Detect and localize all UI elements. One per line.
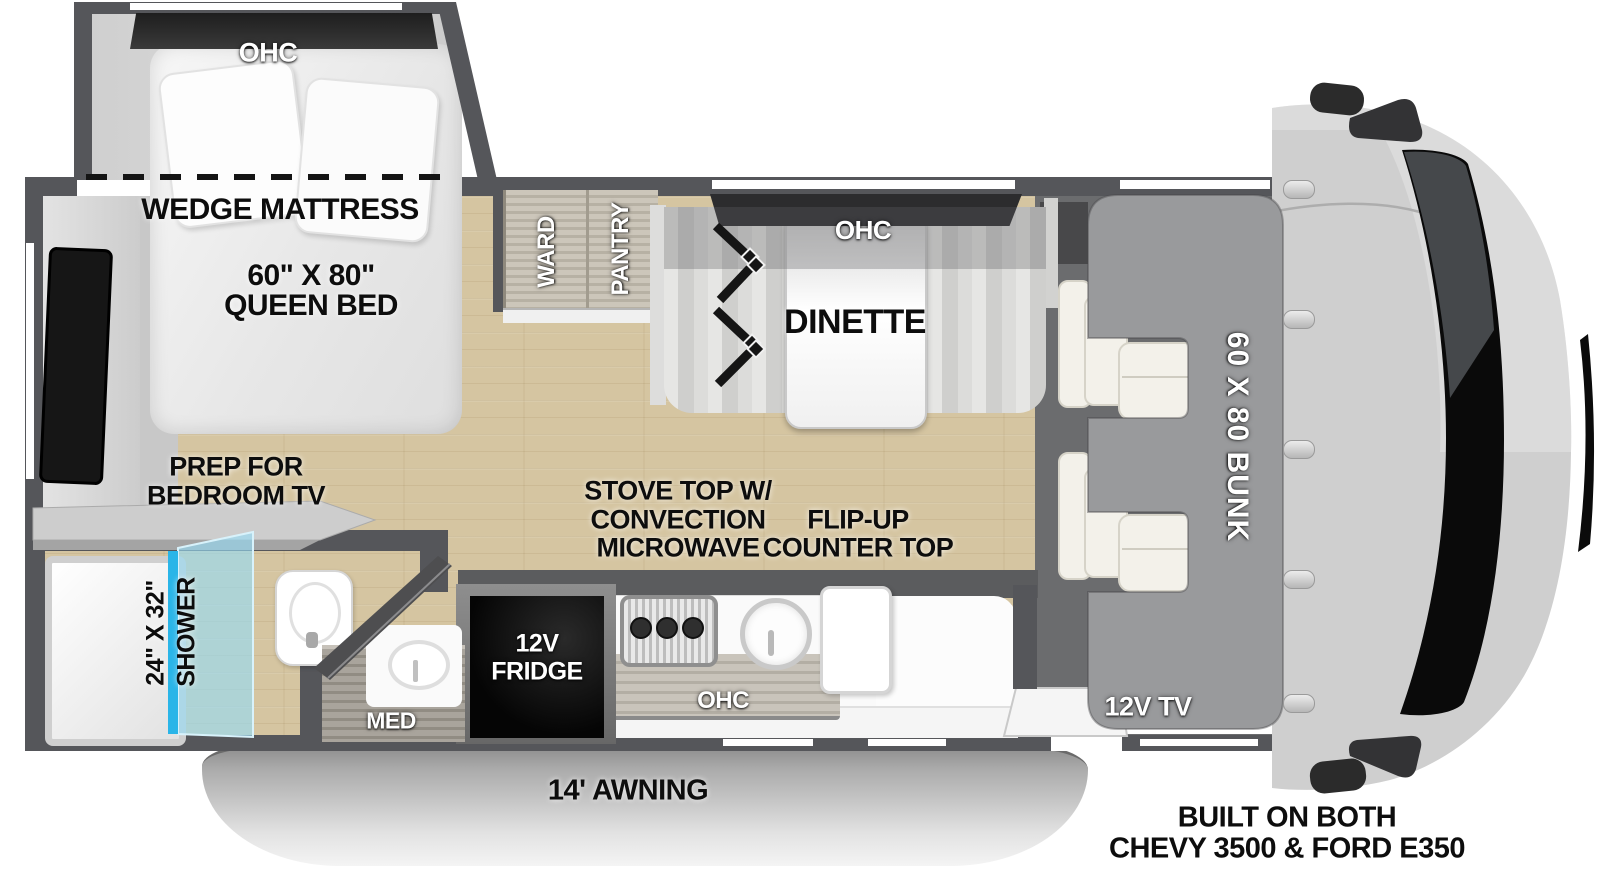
label-bunk: 60 X 80 BUNK <box>1222 332 1252 542</box>
label-tv-prep-1: PREP FOR <box>169 454 303 481</box>
rv-floorplan: OHC WEDGE MATTRESS 60" X 80" QUEEN BED P… <box>0 0 1600 875</box>
bathroom-door-edge <box>328 564 450 678</box>
label-shower: SHOWER <box>175 577 200 687</box>
clearance-light-1 <box>1283 180 1315 199</box>
label-stove-2: CONVECTION <box>590 507 765 534</box>
label-flip-1: FLIP-UP <box>807 507 909 534</box>
label-med: MED <box>366 710 416 733</box>
label-fridge-2: FRIDGE <box>491 660 582 685</box>
clearance-light-4 <box>1283 570 1315 589</box>
clearance-light-5 <box>1283 694 1315 713</box>
label-shower-size: 24" X 32" <box>144 580 169 685</box>
seatbelt-buckles <box>742 249 765 358</box>
bathroom-door <box>314 556 452 680</box>
tv-prep-dresser-front <box>33 540 320 550</box>
label-bedroom-ohc: OHC <box>239 40 298 67</box>
label-wedge-mattress: WEDGE MATTRESS <box>141 195 418 225</box>
label-bed-size: 60" X 80" <box>247 261 374 291</box>
label-dinette-ohc: OHC <box>835 217 891 243</box>
label-tv-prep-2: BEDROOM TV <box>147 483 325 510</box>
bedroom-slide-right-wall <box>437 2 497 180</box>
label-kitchen-ohc: OHC <box>697 689 749 713</box>
clearance-light-2 <box>1283 310 1315 329</box>
clearance-light-3 <box>1283 440 1315 459</box>
shape-overlay <box>0 0 1600 875</box>
label-bed-type: QUEEN BED <box>224 291 398 321</box>
label-dinette: DINETTE <box>784 305 926 339</box>
label-built-1: BUILT ON BOTH <box>1178 804 1397 833</box>
label-built-2: CHEVY 3500 & FORD E350 <box>1109 835 1465 864</box>
label-stove-3: MICROWAVE <box>597 535 760 562</box>
entry-door-jamb <box>1013 585 1037 689</box>
label-12v-tv: 12V TV <box>1104 694 1191 721</box>
label-ward: WARD <box>535 216 559 287</box>
label-stove-1: STOVE TOP W/ <box>584 478 772 505</box>
label-flip-2: COUNTER TOP <box>763 535 954 562</box>
front-bumper <box>1578 334 1594 552</box>
label-pantry: PANTRY <box>609 203 633 296</box>
label-awning: 14' AWNING <box>548 777 708 806</box>
label-fridge-1: 12V <box>516 632 559 657</box>
